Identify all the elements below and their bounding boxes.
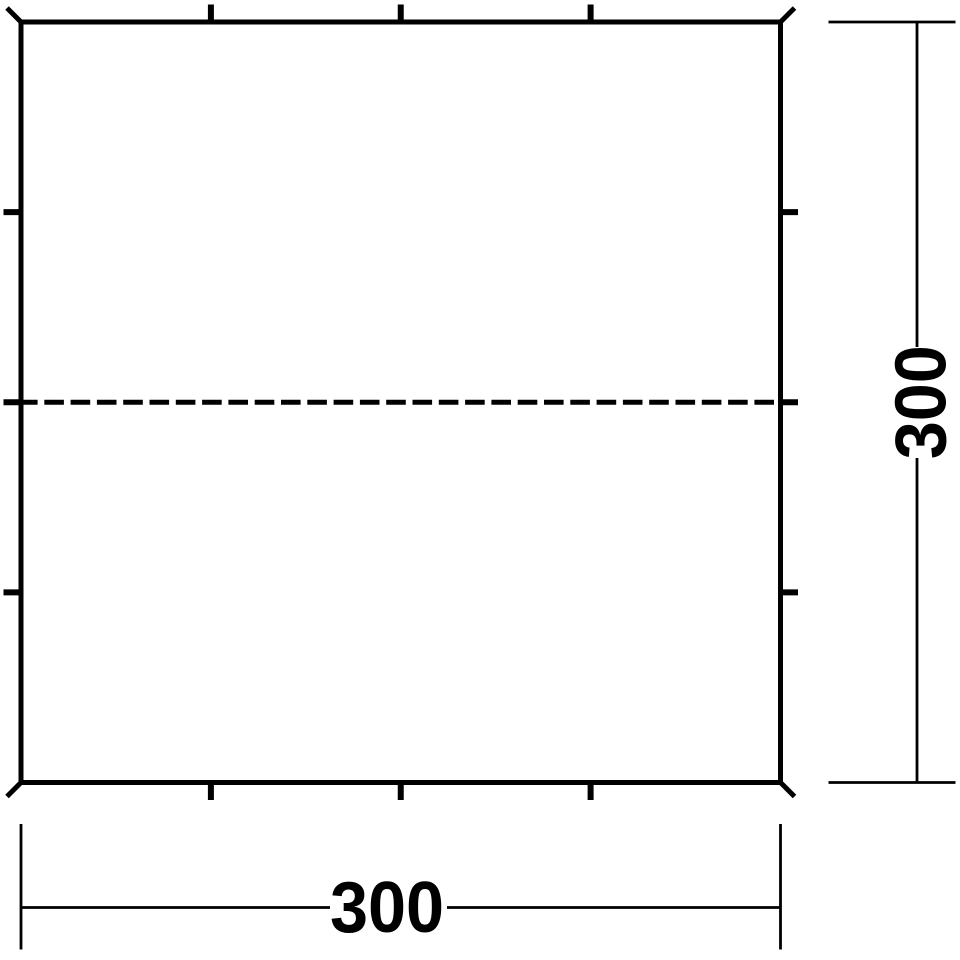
svg-text:300: 300 (330, 866, 444, 947)
svg-text:300: 300 (880, 345, 960, 459)
